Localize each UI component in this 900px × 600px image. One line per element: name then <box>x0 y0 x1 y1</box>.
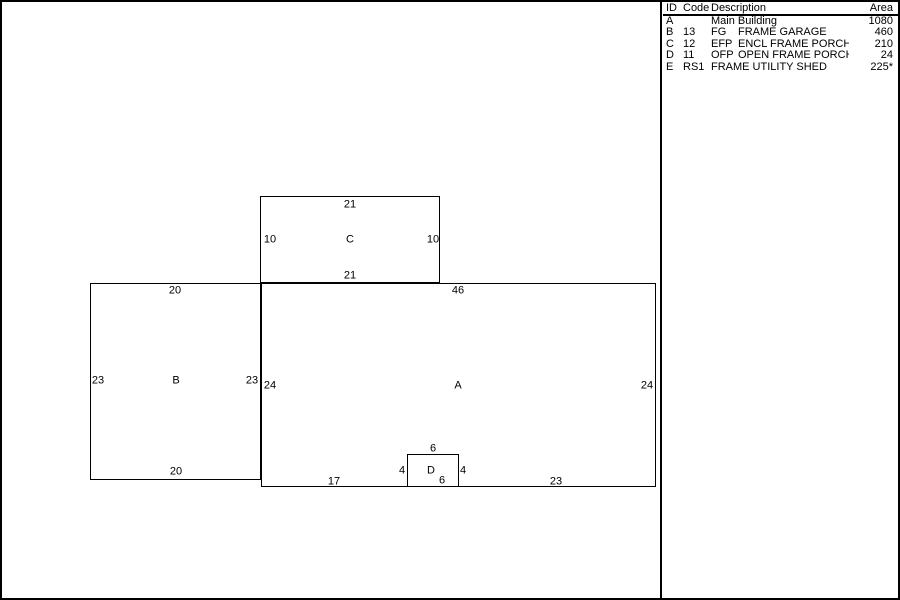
legend-header: ID Code Description Area <box>663 2 898 16</box>
dim-b-left: 23 <box>92 376 104 387</box>
dim-d-right: 4 <box>460 466 466 477</box>
legend-cell-name: FRAME GARAGE <box>738 27 827 38</box>
legend-cell-name: FRAME UTILITY SHED <box>711 62 827 73</box>
legend-row: C 12 EFPENCL FRAME PORCH 210 <box>663 39 898 50</box>
dim-d-bottom: 6 <box>439 476 445 487</box>
panel-divider <box>660 0 662 600</box>
legend-table: ID Code Description Area A Main Building… <box>663 2 898 73</box>
dim-a-bottom-right: 23 <box>550 477 562 488</box>
dim-d-top: 6 <box>430 444 436 455</box>
dim-a-right: 24 <box>641 381 653 392</box>
legend-cell-area: 225* <box>849 62 893 73</box>
legend-cell-description: FRAME UTILITY SHED <box>711 62 849 73</box>
legend-cell-abbr: EFP <box>711 39 738 50</box>
legend-cell-description: Main Building <box>711 16 849 27</box>
legend-cell-code: 11 <box>683 50 711 61</box>
legend-row: D 11 OFPOPEN FRAME PORCH 24 <box>663 50 898 61</box>
dim-d-left: 4 <box>399 466 405 477</box>
shape-label-c: C <box>346 235 354 246</box>
legend-cell-description: OFPOPEN FRAME PORCH <box>711 50 849 61</box>
legend-cell-description: FGFRAME GARAGE <box>711 27 849 38</box>
legend-cell-code: RS1 <box>683 62 711 73</box>
dim-b-top: 20 <box>169 286 181 297</box>
dim-c-right: 10 <box>427 235 439 246</box>
legend-cell-name: Main Building <box>711 16 777 27</box>
dim-c-bottom: 21 <box>344 271 356 282</box>
dim-a-top: 46 <box>452 286 464 297</box>
legend-cell-abbr: OFP <box>711 50 738 61</box>
sketch-page: ID Code Description Area A Main Building… <box>0 0 900 600</box>
legend-header-id: ID <box>666 2 683 14</box>
legend-cell-area: 24 <box>849 50 893 61</box>
shape-label-b: B <box>172 376 179 387</box>
legend-cell-description: EFPENCL FRAME PORCH <box>711 39 849 50</box>
legend-cell-abbr: FG <box>711 27 738 38</box>
legend-header-code: Code <box>683 2 711 14</box>
dim-b-right: 23 <box>246 376 258 387</box>
legend-row: E RS1 FRAME UTILITY SHED 225* <box>663 62 898 73</box>
shape-label-d: D <box>427 466 435 477</box>
shape-label-a: A <box>454 381 461 392</box>
legend-header-description: Description <box>711 2 849 14</box>
dim-c-top: 21 <box>344 200 356 211</box>
legend-row: A Main Building 1080 <box>663 16 898 27</box>
legend-cell-name: ENCL FRAME PORCH <box>738 39 849 50</box>
legend-cell-name: OPEN FRAME PORCH <box>738 50 849 61</box>
dim-c-left: 10 <box>264 235 276 246</box>
legend-header-area: Area <box>849 2 893 14</box>
dim-a-bottom-left: 17 <box>328 477 340 488</box>
legend-cell-id: E <box>666 62 683 73</box>
legend-cell-id: D <box>666 50 683 61</box>
legend-row: B 13 FGFRAME GARAGE 460 <box>663 27 898 38</box>
dim-b-bottom: 20 <box>170 467 182 478</box>
dim-a-left: 24 <box>264 381 276 392</box>
